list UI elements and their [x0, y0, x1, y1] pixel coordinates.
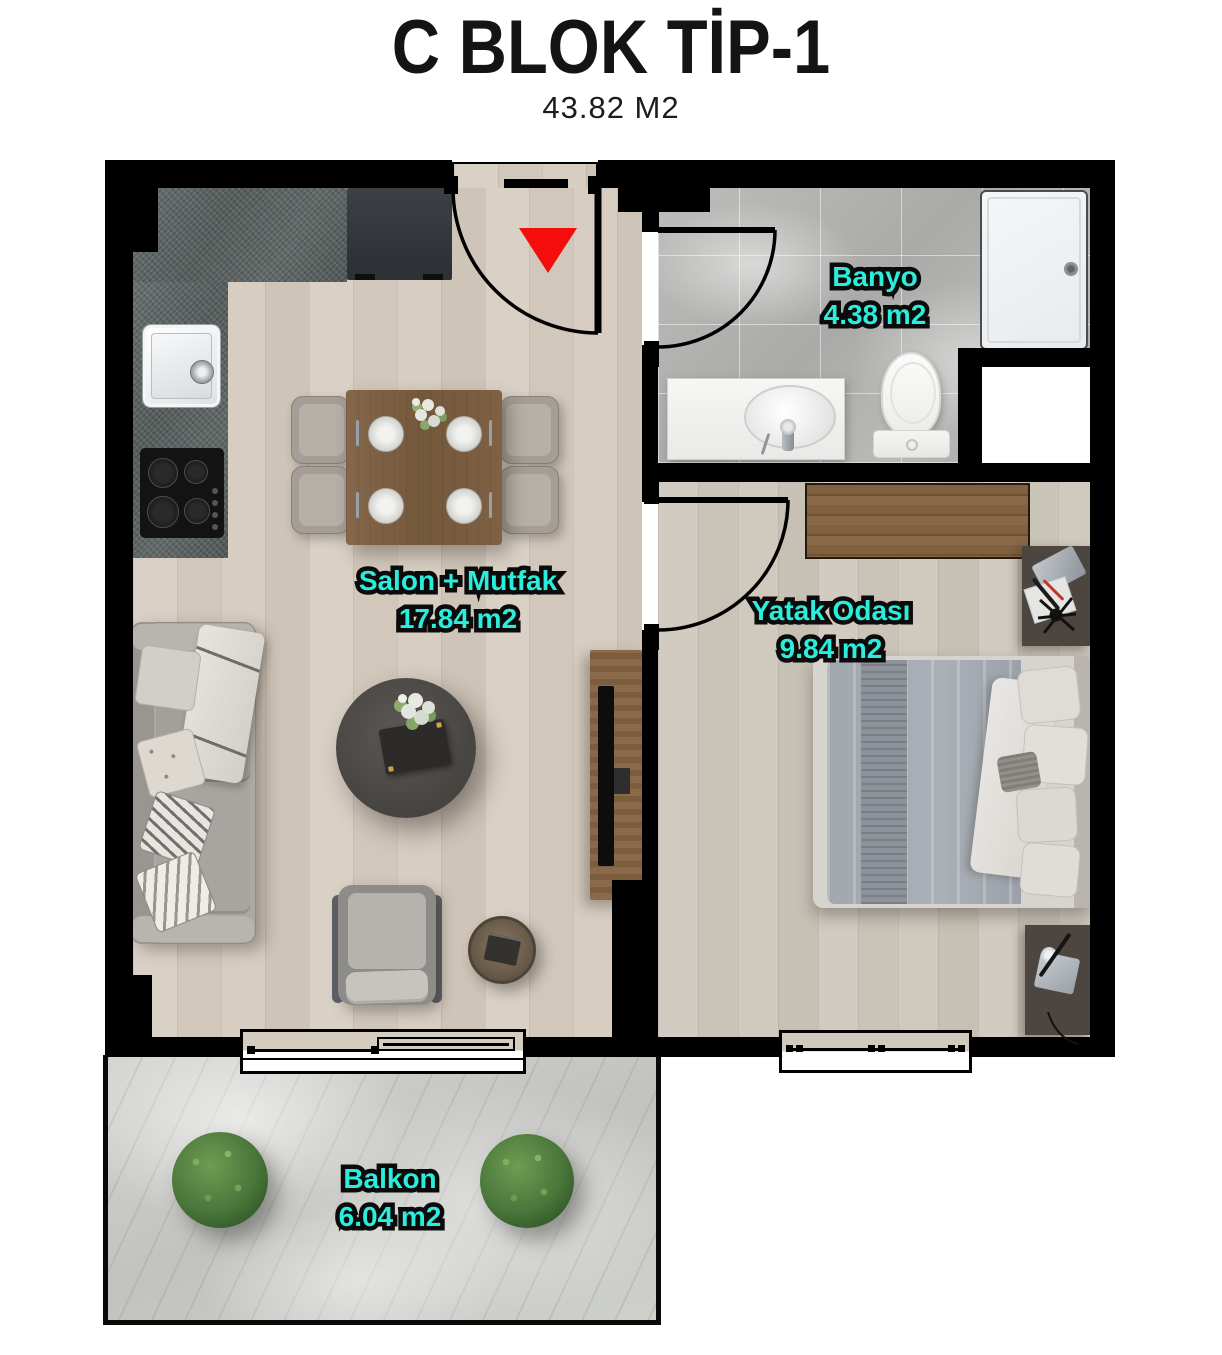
bedroom-window	[779, 1030, 972, 1073]
threshold-line	[243, 1058, 523, 1060]
chair-cushion	[506, 474, 551, 526]
wall-divider-d	[642, 630, 658, 880]
bed	[813, 656, 1090, 908]
fridge	[347, 188, 452, 280]
tray-handle	[436, 722, 442, 728]
room-label-yatak: Yatak Odası 9.84 m2	[681, 592, 981, 668]
faucet-knob-icon	[780, 419, 796, 435]
armchair-cushion	[345, 970, 428, 1005]
chair-cushion	[299, 474, 344, 526]
flower-bouquet	[398, 694, 407, 703]
shower-drain-icon	[1064, 262, 1078, 276]
slider-rail	[249, 1049, 379, 1052]
room-name: Balkon	[280, 1160, 500, 1198]
plate	[446, 488, 482, 524]
window-rail	[786, 1048, 965, 1051]
page-subtitle: 43.82 M2	[0, 90, 1222, 126]
plant	[172, 1132, 268, 1228]
bathroom-vanity	[667, 378, 845, 460]
cutlery-icon	[356, 420, 359, 446]
tv-unit	[590, 650, 642, 900]
pillow	[134, 644, 202, 712]
kitchen-sink	[143, 325, 220, 407]
plate	[368, 416, 404, 452]
slider-stop	[247, 1046, 255, 1054]
knit-throw	[861, 660, 907, 904]
chair-cushion	[506, 404, 551, 456]
flower-centerpiece	[412, 398, 420, 406]
window-stop	[786, 1045, 793, 1052]
room-label-banyo: Banyo 4.38 m2	[765, 258, 985, 334]
door-jamb	[444, 176, 458, 194]
side-table	[468, 916, 536, 984]
balcony-sliding-door	[240, 1029, 526, 1074]
room-label-balkon: Balkon 6.04 m2	[280, 1160, 500, 1236]
room-name: Banyo	[765, 258, 985, 296]
dining-chair	[291, 396, 350, 464]
tv-icon	[598, 686, 614, 866]
chair-cushion	[299, 404, 344, 456]
cooktop-knob	[212, 488, 218, 494]
cooktop-knob	[212, 524, 218, 530]
door-jamb	[644, 480, 659, 504]
shower-tray	[980, 190, 1088, 350]
cooktop-knob	[212, 500, 218, 506]
kitchen-counter-top	[133, 188, 347, 282]
room-label-salon: Salon + Mutfak 17.84 m2	[298, 562, 618, 638]
sofa	[130, 622, 256, 944]
wall-shaft-top	[982, 348, 1090, 367]
cooktop-knob	[212, 512, 218, 518]
pillow	[1016, 665, 1081, 725]
page-title: C BLOK TİP-1	[73, 8, 1148, 88]
burner	[148, 458, 178, 488]
nightstand	[1025, 925, 1090, 1035]
window-stop	[796, 1045, 803, 1052]
dining-chair	[291, 466, 350, 534]
faucet-icon	[190, 360, 214, 384]
wardrobe	[805, 483, 1030, 559]
wall-shaft-left	[958, 348, 982, 463]
window-stop	[948, 1045, 955, 1052]
cutlery-icon	[356, 492, 359, 518]
slider-rail	[383, 1043, 509, 1046]
fridge-foot	[355, 274, 375, 280]
window-stop	[878, 1045, 885, 1052]
wall-entry-block	[618, 167, 710, 212]
tv-mount	[614, 768, 630, 794]
dining-table	[346, 390, 502, 545]
cutlery-icon	[489, 420, 492, 446]
tray-handle	[388, 766, 394, 772]
toilet-seat	[890, 362, 936, 424]
sofa-armrest	[132, 916, 254, 942]
door-jamb	[588, 176, 601, 194]
window-stop	[868, 1045, 875, 1052]
pillow	[1016, 786, 1079, 843]
wall-right	[1090, 160, 1115, 1057]
dining-chair	[500, 466, 559, 534]
armchair	[332, 885, 442, 1010]
wall-left	[105, 160, 133, 1057]
burner	[184, 460, 208, 484]
book	[484, 933, 522, 966]
plan-header: C BLOK TİP-1 43.82 M2	[0, 8, 1222, 126]
cutlery-icon	[489, 492, 492, 518]
room-area: 17.84 m2	[298, 600, 618, 638]
window-stop	[958, 1045, 965, 1052]
toilet-tank	[873, 430, 950, 458]
burner	[184, 498, 210, 524]
door-threshold	[504, 179, 568, 188]
wall-divider-e	[612, 880, 658, 1037]
room-area: 9.84 m2	[681, 630, 981, 668]
entrance-arrow-icon	[519, 228, 577, 273]
room-name: Salon + Mutfak	[298, 562, 618, 600]
door-jamb	[644, 341, 659, 367]
floor-plan-page: C BLOK TİP-1 43.82 M2	[0, 0, 1222, 1355]
burner	[147, 496, 179, 528]
accent-pillow	[996, 751, 1042, 793]
room-area: 6.04 m2	[280, 1198, 500, 1236]
cooktop	[140, 448, 224, 538]
shaft-void	[982, 367, 1090, 463]
room-name: Yatak Odası	[681, 592, 981, 630]
wall-bath-bottom	[642, 463, 1115, 482]
plate	[368, 488, 404, 524]
door-jamb	[644, 624, 659, 650]
armchair-seat	[348, 893, 426, 969]
slider-panel	[377, 1037, 515, 1051]
flush-button-icon	[906, 439, 918, 451]
tray	[379, 719, 452, 776]
toilet	[873, 352, 950, 458]
door-jamb	[644, 208, 659, 232]
coffee-table	[336, 678, 476, 818]
pillow	[1019, 842, 1081, 899]
dining-chair	[500, 396, 559, 464]
desk	[1022, 546, 1090, 646]
fridge-foot	[423, 274, 443, 280]
room-area: 4.38 m2	[765, 296, 985, 334]
plate	[446, 416, 482, 452]
